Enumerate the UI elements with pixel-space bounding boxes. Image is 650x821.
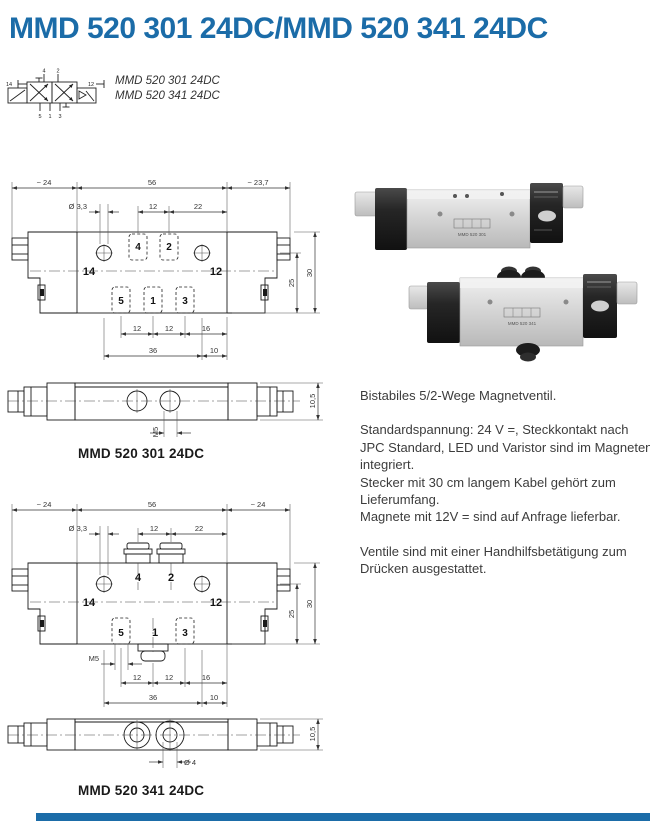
port-3-label: 3 (182, 296, 188, 307)
symbol-port-4: 4 (42, 69, 45, 75)
port-14-label: 14 (83, 266, 96, 278)
port-1-label: 1 (152, 627, 158, 639)
dim-56: 56 (148, 178, 156, 187)
drawing-301-front-view: 4 2 5 1 3 14 12 (0, 178, 345, 374)
description-text: Bistabiles 5/2-Wege Magnetventil. Standa… (360, 387, 650, 595)
port-2-label: 2 (166, 242, 172, 253)
photo-valve-301: MMD 520 301 (355, 183, 583, 250)
port-5-label: 5 (118, 296, 124, 307)
dim-24-right: ~ 24 (251, 500, 266, 509)
product-photo: MMD 520 301 MMD 520 341 (352, 172, 650, 368)
symbol-port-14: 14 (6, 82, 12, 88)
side-extension-lines (164, 383, 323, 437)
dim-10: 10 (210, 693, 218, 702)
drawing-341-bottom-view: Ø 4 10,5 (0, 710, 345, 780)
symbol-port-5: 5 (38, 114, 41, 120)
description-p3: Ventile sind mit einer Handhilfsbetätigu… (360, 543, 650, 578)
side-view-outline (8, 383, 293, 420)
dim-22: 22 (194, 202, 202, 211)
bottom-view-outline (8, 719, 293, 750)
dim-105: 10,5 (308, 727, 317, 742)
dim-105: 10,5 (308, 394, 317, 409)
valve-schematic-symbol: 4 2 5 1 3 14 12 (6, 68, 116, 124)
description-p1: Bistabiles 5/2-Wege Magnetventil. (360, 387, 650, 404)
port-12-label: 12 (210, 266, 222, 278)
port-14-label: 14 (83, 597, 96, 609)
footer-accent-bar (36, 813, 650, 821)
port-4-label: 4 (135, 572, 142, 584)
dim-12-top: 12 (149, 202, 157, 211)
dim-12-b2: 12 (165, 673, 173, 682)
port-5-label: 5 (118, 628, 124, 639)
port-4-label: 4 (135, 242, 141, 253)
port-1-label: 1 (150, 296, 156, 307)
port-2-label: 2 (168, 572, 174, 584)
dim-25: 25 (287, 610, 296, 618)
symbol-port-2: 2 (56, 69, 59, 75)
drawing-301-side-view: M5 10,5 (0, 375, 345, 445)
symbol-body (8, 74, 104, 111)
dim-36: 36 (149, 346, 157, 355)
dim-237: ~ 23,7 (247, 178, 268, 187)
dim-hole-33: Ø 3,3 (69, 524, 87, 533)
photo-label-301: MMD 520 301 (458, 232, 487, 237)
variant-label-341: MMD 520 341 24DC (115, 89, 220, 104)
dim-12-b1: 12 (133, 324, 141, 333)
dim-16: 16 (202, 324, 210, 333)
caption-301: MMD 520 301 24DC (78, 446, 204, 461)
photo-valve-341: MMD 520 341 (409, 267, 637, 362)
datasheet-page: MMD 520 301 24DC/MMD 520 341 24DC (0, 0, 650, 821)
dim-24-left: ~ 24 (37, 178, 52, 187)
dim-24-left: ~ 24 (37, 500, 52, 509)
hole-crosshairs (95, 244, 211, 262)
dim-12-b1: 12 (133, 673, 141, 682)
dim-hole-33: Ø 3,3 (69, 202, 87, 211)
dimension-lines-341 (12, 510, 315, 703)
dim-56: 56 (148, 500, 156, 509)
dim-m5-341: M5 (89, 654, 99, 663)
dim-22: 22 (195, 524, 203, 533)
port-12-label: 12 (210, 597, 222, 609)
dim-m5: M5 (151, 427, 160, 437)
port-3-label: 3 (182, 628, 188, 639)
symbol-port-12: 12 (88, 82, 94, 88)
photo-label-341: MMD 520 341 (508, 321, 537, 326)
symbol-port-3: 3 (58, 114, 61, 120)
dim-10: 10 (210, 346, 218, 355)
dim-12-top: 12 (150, 524, 158, 533)
dim-30: 30 (305, 269, 314, 277)
dim-d4: Ø 4 (184, 758, 196, 767)
symbol-port-1: 1 (48, 114, 51, 120)
page-title: MMD 520 301 24DC/MMD 520 341 24DC (9, 12, 645, 46)
description-p2: Standardspannung: 24 V =, Steckkontakt n… (360, 421, 650, 525)
dim-30: 30 (305, 600, 314, 608)
hole-crosshairs-341 (95, 575, 211, 593)
dim-25: 25 (287, 279, 296, 287)
caption-341: MMD 520 341 24DC (78, 783, 204, 798)
dim-16: 16 (202, 673, 210, 682)
drawing-341-front-view: 4 2 5 1 3 14 12 (0, 500, 345, 710)
variant-label-301: MMD 520 301 24DC (115, 74, 220, 89)
symbol-variant-labels: MMD 520 301 24DC MMD 520 341 24DC (115, 74, 220, 104)
dim-36: 36 (149, 693, 157, 702)
dim-12-b2: 12 (165, 324, 173, 333)
dimension-lines (12, 188, 315, 356)
